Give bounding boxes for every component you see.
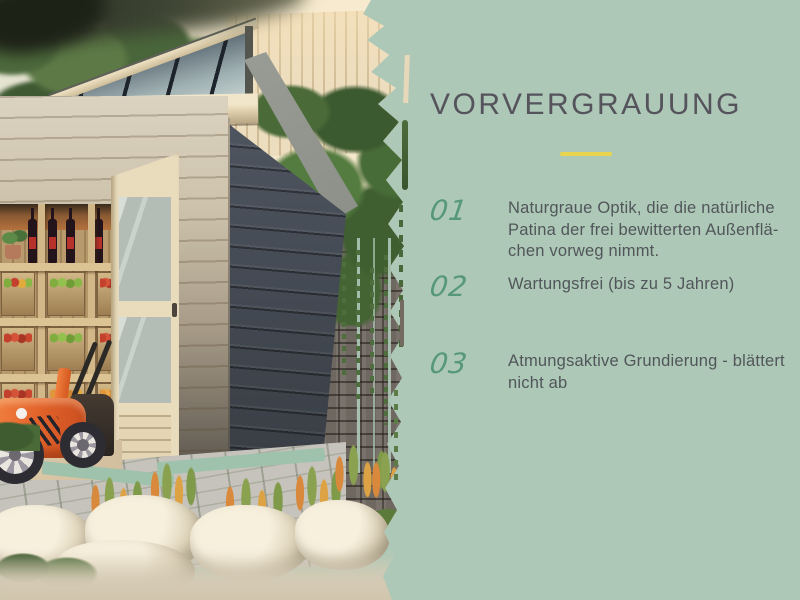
item-text: Wartungsfrei (bis zu 5 Jahren) [508,273,734,296]
item-number: 03 [428,350,510,378]
door-handle [172,303,177,317]
item-text: Naturgraue Optik, die die natürlichePati… [508,197,779,263]
ivy-strand [394,390,398,480]
door-glass-pane [119,197,171,301]
fruit-crate [47,272,85,316]
title-divider [560,152,612,156]
shelf-board [0,263,118,271]
fruit-crate [1,327,35,371]
foreground-blur [0,556,414,600]
fruit-crate [1,272,35,316]
wine-bottle [94,219,103,263]
grass-tuft [0,415,40,451]
wine-bottle [66,219,75,263]
ivy-vine [356,250,360,400]
torn-fragment [400,300,404,346]
item-number: 01 [428,197,510,225]
feature-item: 01Naturgraue Optik, die die natürlichePa… [430,197,779,263]
torn-fragment [402,120,408,190]
door-glass-pane [119,317,171,403]
slide-title: VORVERGRAUUNG [406,88,766,122]
wine-bottle [28,219,37,263]
fruit-crate [47,327,85,371]
plant-pot [5,245,21,259]
ivy-vine [384,255,388,425]
mower-wheel [60,422,106,468]
ivy-vine [342,262,346,382]
item-number: 02 [428,273,510,301]
slide: VORVERGRAUUNG 01Naturgraue Optik, die di… [0,0,800,600]
ivy-vine [370,268,374,398]
hero-photo [0,0,430,600]
item-text: Atmungsaktive Grundierung - blättertnich… [508,350,785,394]
feature-item: 03Atmungsaktive Grundierung - blättertni… [430,350,785,394]
wine-bottle [48,219,57,263]
feature-item: 02Wartungsfrei (bis zu 5 Jahren) [430,273,734,301]
shelf-board [0,318,118,326]
